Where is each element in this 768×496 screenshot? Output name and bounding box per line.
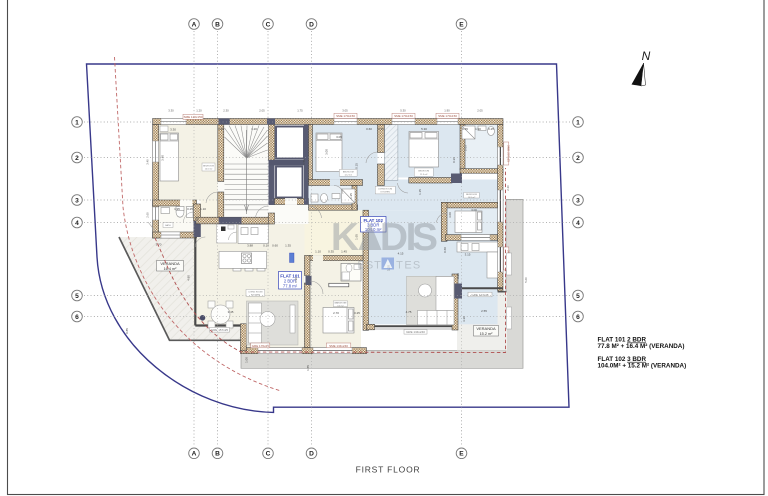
svg-text:E: E <box>357 260 364 272</box>
svg-text:1.20: 1.20 <box>196 109 202 113</box>
svg-text:5: 5 <box>75 293 79 300</box>
svg-text:GRE 157x25: GRE 157x25 <box>211 328 229 332</box>
svg-text:0.15: 0.15 <box>355 163 359 169</box>
svg-text:0.35: 0.35 <box>378 127 384 131</box>
svg-text:2.05: 2.05 <box>259 109 265 113</box>
svg-text:1.20: 1.20 <box>251 127 257 131</box>
svg-text:SME 170x150: SME 170x150 <box>394 114 413 118</box>
svg-text:3.05: 3.05 <box>342 109 348 113</box>
svg-text:T: T <box>374 260 381 272</box>
svg-text:E: E <box>459 451 464 458</box>
svg-text:BEDROOM: BEDROOM <box>203 166 214 168</box>
svg-text:1.75: 1.75 <box>196 218 200 224</box>
svg-text:104.0M² + 15.2 M² (VERANDA): 104.0M² + 15.2 M² (VERANDA) <box>598 363 687 370</box>
svg-text:3.05: 3.05 <box>336 135 342 139</box>
svg-text:LIVING ROOM: LIVING ROOM <box>378 189 392 191</box>
svg-text:6: 6 <box>576 314 580 321</box>
svg-text:77.8 m²: 77.8 m² <box>283 284 298 289</box>
svg-text:3.00: 3.00 <box>471 208 477 212</box>
svg-text:C: C <box>266 21 271 28</box>
svg-text:0.90: 0.90 <box>218 127 224 131</box>
svg-text:WARDROBE: WARDROBE <box>334 302 347 305</box>
svg-text:SME 207x25: SME 207x25 <box>507 145 511 163</box>
svg-text:2.60: 2.60 <box>146 212 150 218</box>
svg-text:1.90: 1.90 <box>444 109 450 113</box>
svg-text:GRE 147x25: GRE 147x25 <box>471 293 489 297</box>
svg-text:1.25: 1.25 <box>349 193 353 199</box>
svg-text:1.35: 1.35 <box>285 244 291 248</box>
svg-text:K: K <box>331 216 359 259</box>
svg-text:77.8 M² + 16.4 M² (VERANDA): 77.8 M² + 16.4 M² (VERANDA) <box>598 343 685 350</box>
svg-text:2.30: 2.30 <box>223 109 229 113</box>
svg-text:4: 4 <box>576 220 580 227</box>
svg-text:S: S <box>413 260 420 272</box>
svg-text:6: 6 <box>75 314 79 321</box>
svg-text:1.55: 1.55 <box>306 365 310 371</box>
svg-text:3.00: 3.00 <box>325 149 329 155</box>
svg-text:BEDROOM: BEDROOM <box>343 171 354 173</box>
svg-text:2: 2 <box>75 155 79 162</box>
svg-text:D: D <box>380 216 408 259</box>
svg-text:4.80: 4.80 <box>187 275 191 281</box>
svg-text:GRE 176x25: GRE 176x25 <box>252 344 270 348</box>
svg-text:A: A <box>192 451 197 458</box>
svg-text:3: 3 <box>75 197 79 204</box>
svg-text:LIVING ROOM: LIVING ROOM <box>248 291 262 293</box>
svg-text:D: D <box>309 451 314 458</box>
svg-text:KITCHEN: KITCHEN <box>381 192 391 194</box>
svg-text:2.05: 2.05 <box>464 145 468 151</box>
svg-text:3.88: 3.88 <box>247 244 253 248</box>
svg-text:C: C <box>266 451 271 458</box>
svg-text:2.30: 2.30 <box>506 185 510 191</box>
svg-text:1: 1 <box>576 119 580 126</box>
svg-text:1.50: 1.50 <box>302 159 306 165</box>
svg-text:3: 3 <box>576 197 580 204</box>
svg-text:SME 134x240: SME 134x240 <box>329 344 348 348</box>
svg-text:12.2 m2: 12.2 m2 <box>344 174 352 176</box>
svg-text:VERANDA: VERANDA <box>476 326 496 331</box>
svg-text:N: N <box>642 49 651 63</box>
svg-text:1.15: 1.15 <box>418 189 422 195</box>
svg-text:GRE 134x240: GRE 134x240 <box>406 330 425 334</box>
svg-text:1.90: 1.90 <box>475 127 481 131</box>
svg-text:4: 4 <box>75 220 79 227</box>
svg-text:0.25: 0.25 <box>354 311 360 315</box>
svg-text:1.00: 1.00 <box>245 357 249 363</box>
svg-text:SME 170x150: SME 170x150 <box>336 114 355 118</box>
svg-text:1.90: 1.90 <box>294 277 298 283</box>
svg-text:3.00: 3.00 <box>448 212 452 218</box>
svg-text:E: E <box>404 260 411 272</box>
svg-text:S: S <box>366 260 373 272</box>
svg-text:3.30: 3.30 <box>168 109 174 113</box>
svg-text:2.05: 2.05 <box>477 109 483 113</box>
svg-text:SME 170x150: SME 170x150 <box>438 114 457 118</box>
svg-text:E: E <box>459 21 464 28</box>
svg-text:0.60: 0.60 <box>443 247 447 253</box>
svg-text:1.95: 1.95 <box>174 207 180 211</box>
svg-text:3.40: 3.40 <box>146 159 150 165</box>
svg-text:5: 5 <box>576 293 580 300</box>
svg-text:0.85: 0.85 <box>125 328 129 334</box>
svg-text:3.5 m2: 3.5 m2 <box>337 305 344 307</box>
svg-text:0.60: 0.60 <box>272 244 278 248</box>
svg-text:0.25: 0.25 <box>456 273 460 279</box>
svg-text:5.30: 5.30 <box>400 109 406 113</box>
svg-text:0.60: 0.60 <box>366 127 372 131</box>
svg-text:5.30: 5.30 <box>421 127 427 131</box>
svg-text:0.25: 0.25 <box>488 127 494 131</box>
svg-text:VERANDA: VERANDA <box>160 261 180 266</box>
svg-text:16.4 m²: 16.4 m² <box>164 267 178 271</box>
svg-text:B: B <box>215 21 220 28</box>
svg-text:3.30: 3.30 <box>170 128 176 132</box>
svg-text:4.75: 4.75 <box>406 310 412 314</box>
svg-text:BATH: BATH <box>165 224 171 227</box>
svg-text:T: T <box>396 260 403 272</box>
svg-text:11.9 m2: 11.9 m2 <box>420 174 428 176</box>
svg-text:15.2 m²: 15.2 m² <box>480 332 494 336</box>
svg-text:14.6 m2: 14.6 m2 <box>205 169 213 171</box>
svg-text:FIRST FLOOR: FIRST FLOOR <box>356 465 421 475</box>
svg-text:1.10: 1.10 <box>315 250 321 254</box>
svg-text:1.75: 1.75 <box>297 109 303 113</box>
svg-text:SME 120x150: SME 120x150 <box>184 115 203 119</box>
svg-text:0.45: 0.45 <box>462 127 468 131</box>
svg-text:0.25: 0.25 <box>187 207 193 211</box>
svg-text:BEDROOM: BEDROOM <box>418 171 429 173</box>
svg-text:2: 2 <box>576 155 580 162</box>
svg-text:1.10: 1.10 <box>200 207 206 211</box>
svg-text:2.70: 2.70 <box>333 311 339 315</box>
svg-text:5.60: 5.60 <box>524 277 528 283</box>
svg-text:2.55: 2.55 <box>481 309 487 313</box>
svg-text:1: 1 <box>75 119 79 126</box>
svg-text:A: A <box>192 21 197 28</box>
svg-text:10.8 m2: 10.8 m2 <box>468 197 476 199</box>
svg-text:B: B <box>215 451 220 458</box>
svg-text:S: S <box>412 216 438 259</box>
svg-text:D: D <box>309 21 314 28</box>
svg-text:3.45: 3.45 <box>228 310 234 314</box>
svg-text:3.15: 3.15 <box>465 253 471 257</box>
